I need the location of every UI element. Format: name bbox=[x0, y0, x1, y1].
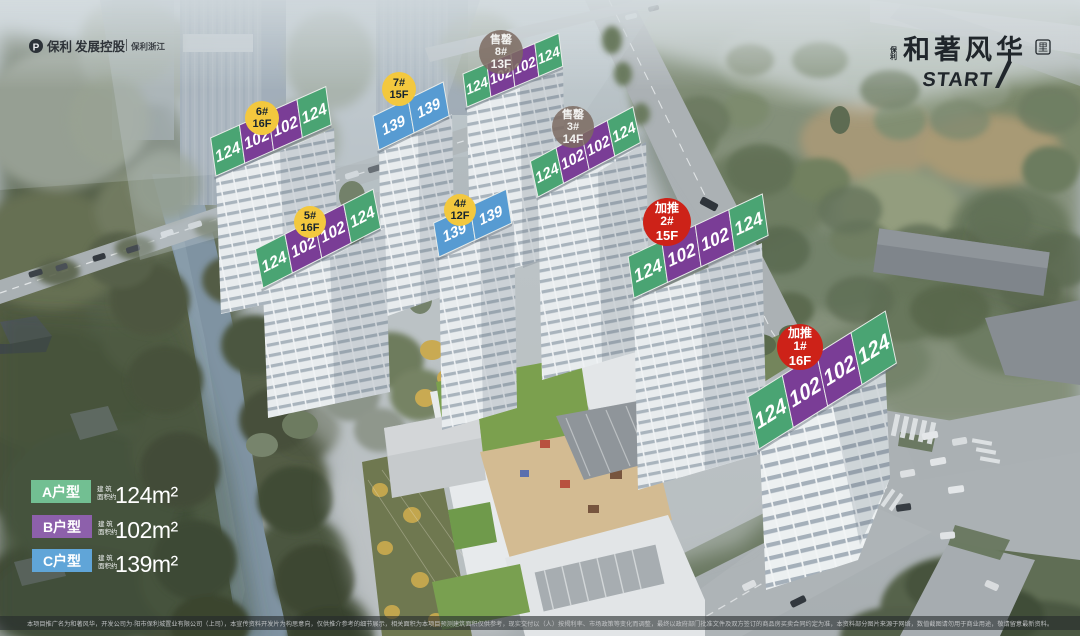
svg-text:建 筑: 建 筑 bbox=[97, 484, 112, 493]
svg-text:16F: 16F bbox=[253, 118, 272, 130]
svg-text:16F: 16F bbox=[789, 353, 811, 368]
svg-text:C户型: C户型 bbox=[43, 553, 81, 569]
svg-text:B户型: B户型 bbox=[43, 519, 81, 535]
svg-text:START: START bbox=[921, 69, 993, 91]
svg-text:4#: 4# bbox=[454, 198, 466, 210]
svg-text:A户型: A户型 bbox=[42, 484, 80, 500]
svg-text:13F: 13F bbox=[491, 57, 512, 71]
svg-text:102m²: 102m² bbox=[115, 517, 179, 543]
svg-text:12F: 12F bbox=[451, 210, 470, 222]
svg-text:建 筑: 建 筑 bbox=[98, 553, 113, 562]
svg-text:发展控股: 发展控股 bbox=[74, 39, 126, 54]
svg-text:7#: 7# bbox=[393, 77, 405, 89]
svg-text:里: 里 bbox=[1038, 42, 1048, 54]
svg-text:P: P bbox=[33, 43, 40, 54]
svg-text:124m²: 124m² bbox=[115, 482, 179, 508]
svg-text:5#: 5# bbox=[304, 210, 316, 222]
svg-text:面积约: 面积约 bbox=[97, 492, 117, 501]
svg-text:2#: 2# bbox=[660, 214, 674, 228]
svg-text:售罄: 售罄 bbox=[561, 107, 584, 121]
svg-text:保利: 保利 bbox=[46, 39, 72, 54]
svg-text:6#: 6# bbox=[256, 106, 268, 118]
svg-text:售罄: 售罄 bbox=[489, 32, 512, 46]
svg-text:139m²: 139m² bbox=[115, 551, 179, 577]
svg-text:15F: 15F bbox=[656, 228, 678, 243]
svg-text:14F: 14F bbox=[563, 132, 584, 146]
svg-text:本项目推广名为和著风华，开发公司为·阳市保利城置业有限公司（: 本项目推广名为和著风华，开发公司为·阳市保利城置业有限公司（上司），本宣传资料开… bbox=[27, 620, 1053, 628]
svg-text:加推: 加推 bbox=[787, 325, 812, 340]
svg-text:加推: 加推 bbox=[654, 200, 679, 215]
svg-text:15F: 15F bbox=[390, 89, 409, 101]
svg-text:保利浙江: 保利浙江 bbox=[130, 42, 166, 52]
svg-text:建 筑: 建 筑 bbox=[98, 519, 113, 528]
svg-text:1#: 1# bbox=[793, 339, 807, 353]
svg-text:16F: 16F bbox=[301, 222, 320, 234]
